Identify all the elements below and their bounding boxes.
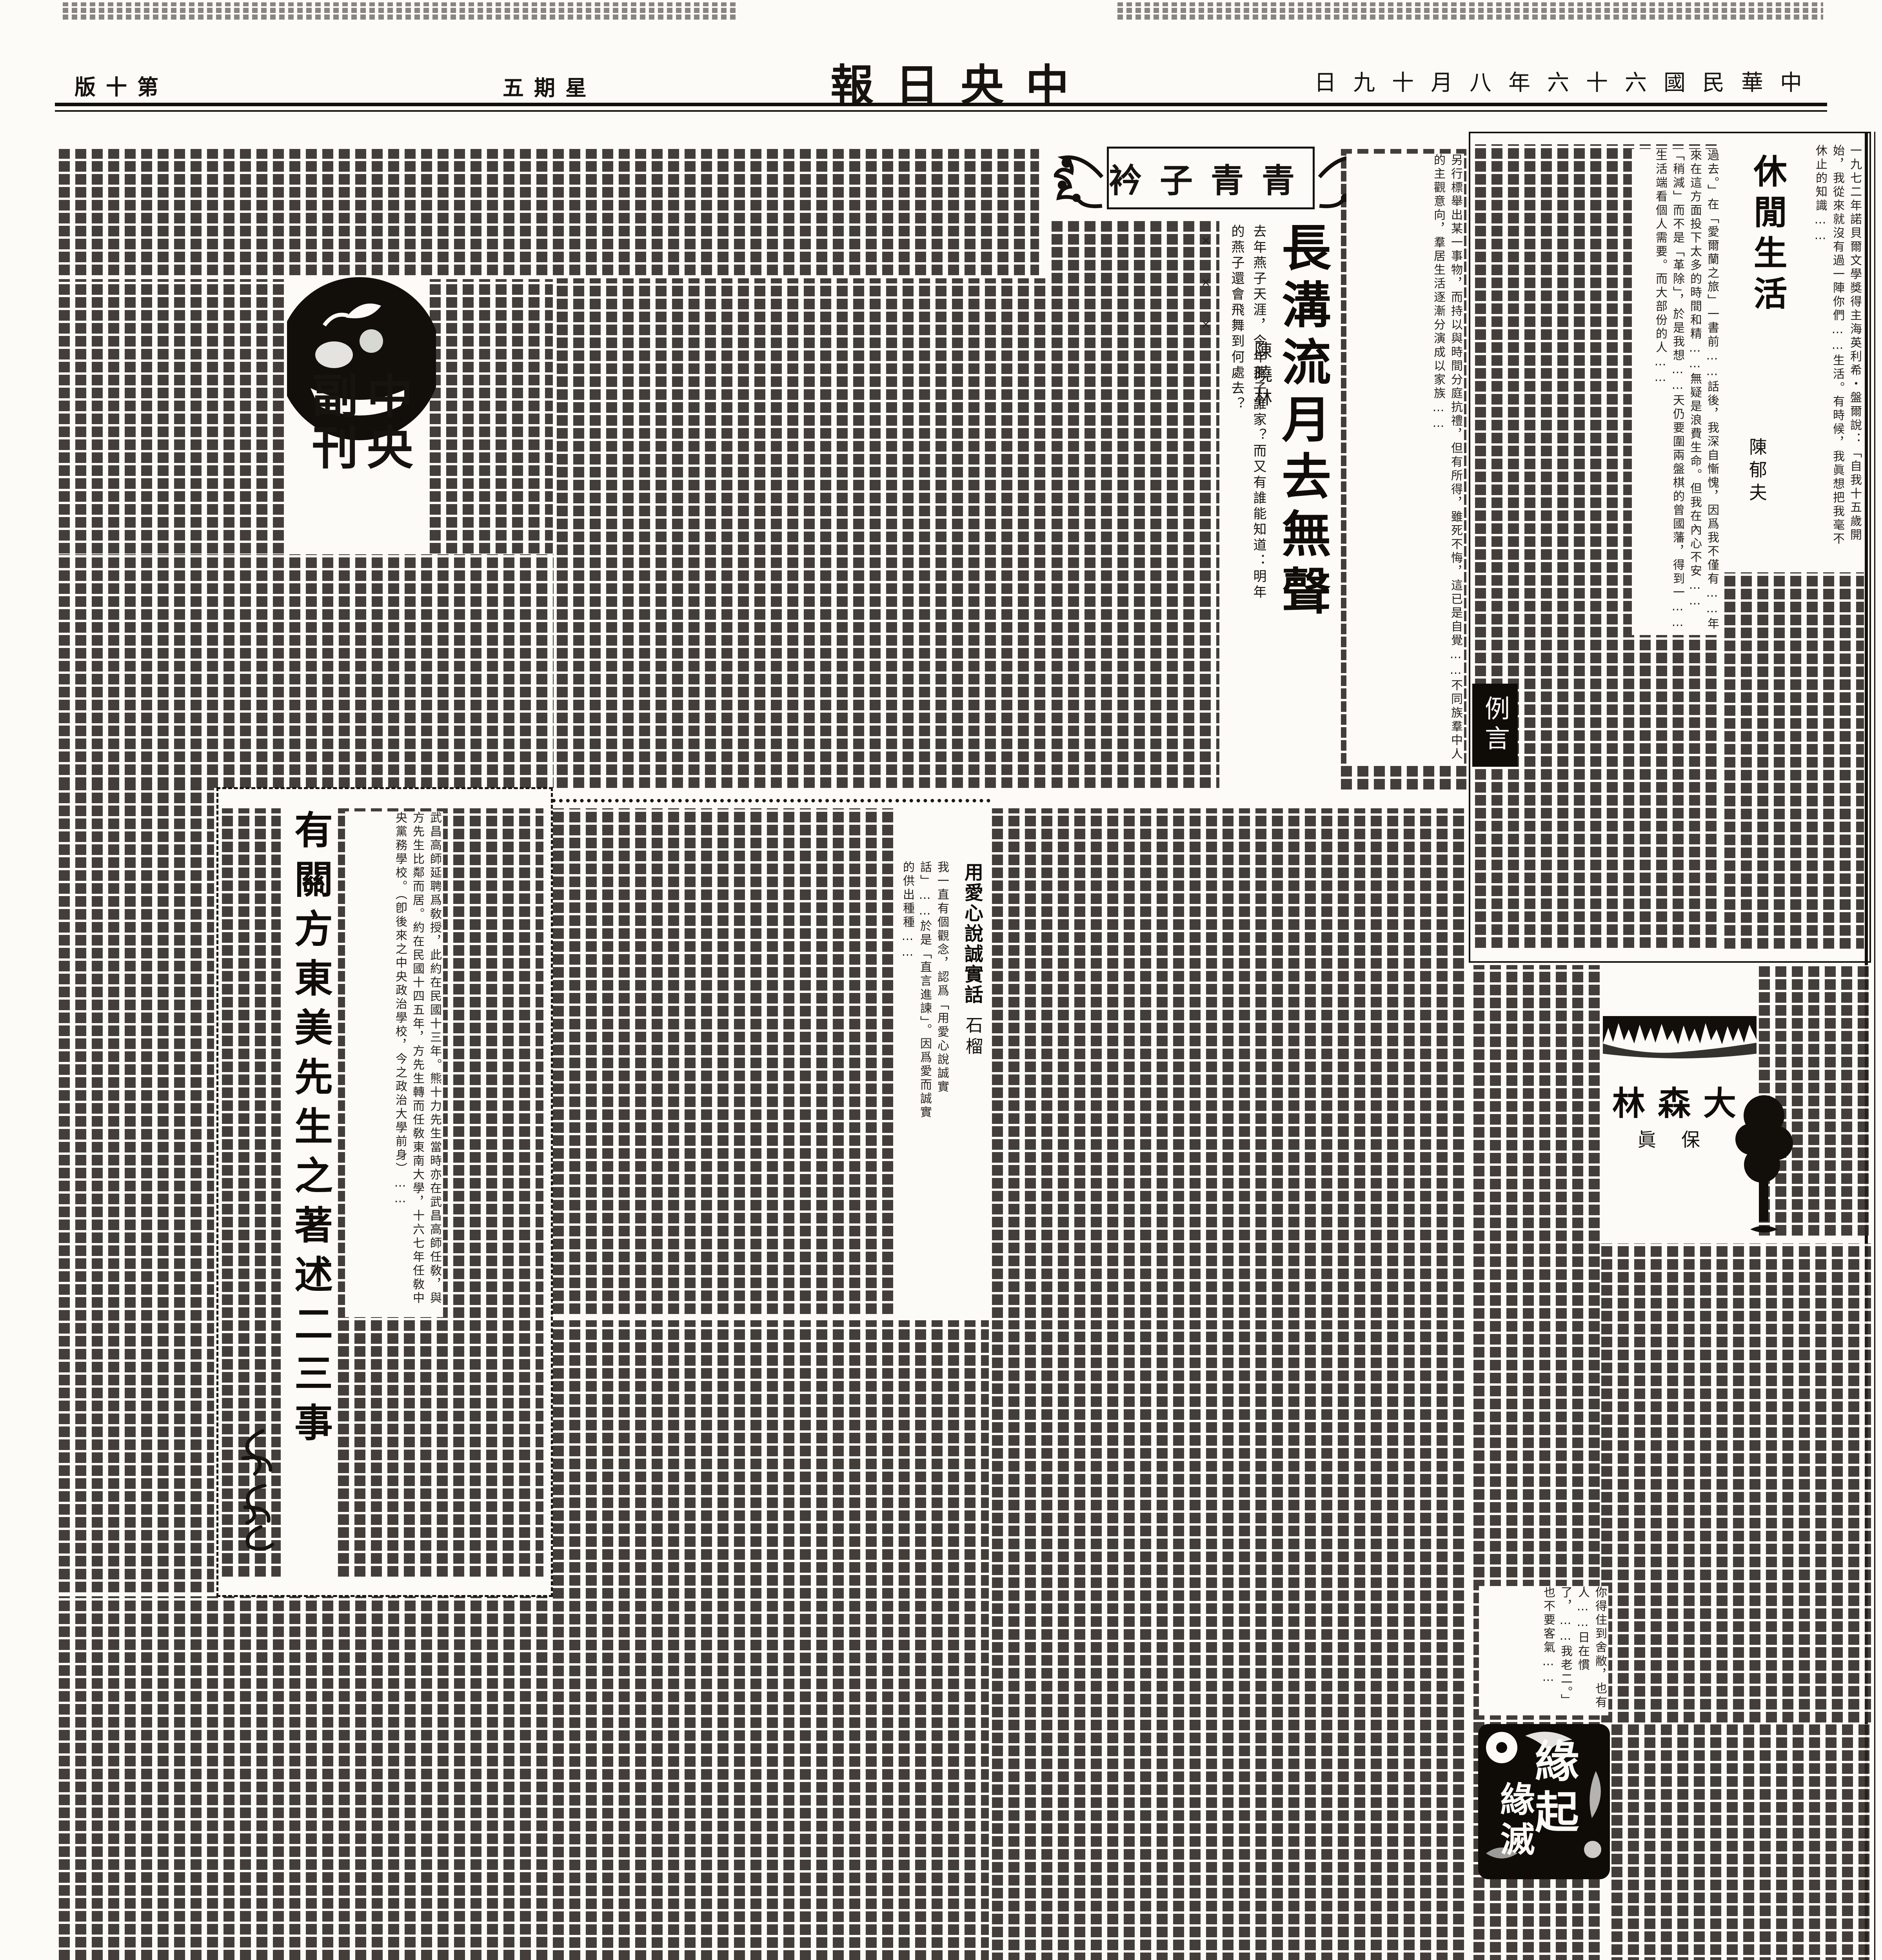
floral-ornament-left-icon [1054,140,1107,216]
newspaper-page: 版十第 五期星 報日央中 日九十月八年六十六國民華中 中央副刊 [0,0,1882,1960]
header-rule-thin [55,110,1827,112]
column-banner-frame: 衿子青青 [1107,147,1315,209]
dotted-separator [552,799,990,802]
text-columns [992,1320,1464,1960]
essay-byline: 陳曉林 [1249,341,1275,412]
honest-lead-text: 我一直有個觀念，認爲「用愛心說誠實話」……於是「直言進諫」。因爲愛而誠實的供出種… [899,861,950,1127]
page-border-right-inner [1874,132,1875,1960]
leisure-body-text: 過去。」在「愛爾蘭之旅」一書前……話後，我深自慚愧，因爲我不僅有……年來在這方面… [1632,149,1720,635]
text-columns [59,1596,550,1960]
weekday-label: 五期星 [503,71,597,102]
column-banner-title: 衿子青青 [1109,154,1313,202]
text-columns [557,278,1045,788]
text-columns [1601,1243,1871,1722]
text-columns [1052,220,1219,788]
fang-headline: 有關方東美先生之著述二三事 [283,810,338,1472]
text-columns [430,279,553,554]
fang-body-text: 武昌高師延聘爲敎授，此約在民國十三年。熊十力先生當時亦在武昌高師任敎，與方先生比… [345,811,443,1317]
essay-lead-text: 另行標舉出某一事物，而持以與時間分庭抗禮，但有所得，雖死不悔，這已是自覺……不同… [1346,154,1464,765]
text-columns [59,149,1039,275]
forest-treeline-illustration [1603,1016,1757,1068]
honest-headline: 用愛心說誠實話 [950,862,986,1015]
author-signature [227,1423,286,1556]
text-columns [553,1320,989,1960]
fate-lead-text: 你得住到舍敝，也有人……日在慣了，……我老二。」也不要客氣…… [1479,1586,1608,1715]
publication-date: 日九十月八年六十六國民華中 [1314,65,1819,97]
text-columns [59,279,286,554]
essay-headline: 長溝流月去無聲 [1275,222,1338,637]
text-columns [553,808,898,1314]
fate-title-lower: 緣滅 [1490,1781,1540,1871]
section-divider-marks: ××× [1199,234,1213,359]
honest-byline: 石榴 [960,1016,985,1058]
column-banner: 衿子青青 [1054,140,1368,216]
supplement-logo: 中央副刊 [287,270,436,541]
leisure-lead-text: 一九七二年諾貝爾文學獎得主海英利希・盤爾說：「自我十五歲開始，我從來就沒有過一陣… [1786,144,1863,552]
notice-box: 例言 [1472,684,1518,767]
text-columns [1724,572,1864,949]
tree-illustration [1735,1088,1793,1241]
supplement-logo-text: 中央副刊 [296,372,413,489]
leisure-byline: 陳郁夫 [1744,437,1770,506]
page-number: 版十第 [74,70,169,101]
text-columns [59,788,214,1592]
header-rule-thick [55,103,1827,106]
top-margin-small-print [63,2,737,20]
text-columns [1611,1724,1870,1960]
notice-box-label: 例言 [1477,695,1513,755]
essay-epigraph: 去年燕子天涯，今年燕子誰家？而又有誰能知道：明年的燕子還會飛舞到何處去？ [1219,224,1270,608]
forest-title: 林森大 [1612,1077,1749,1125]
text-columns [992,808,1464,1318]
top-margin-small-print [1117,2,1823,20]
fate-title-illustration: 緣起 緣滅 [1478,1724,1610,1879]
forest-byline: 眞保 [1637,1124,1725,1152]
text-columns [59,554,554,788]
